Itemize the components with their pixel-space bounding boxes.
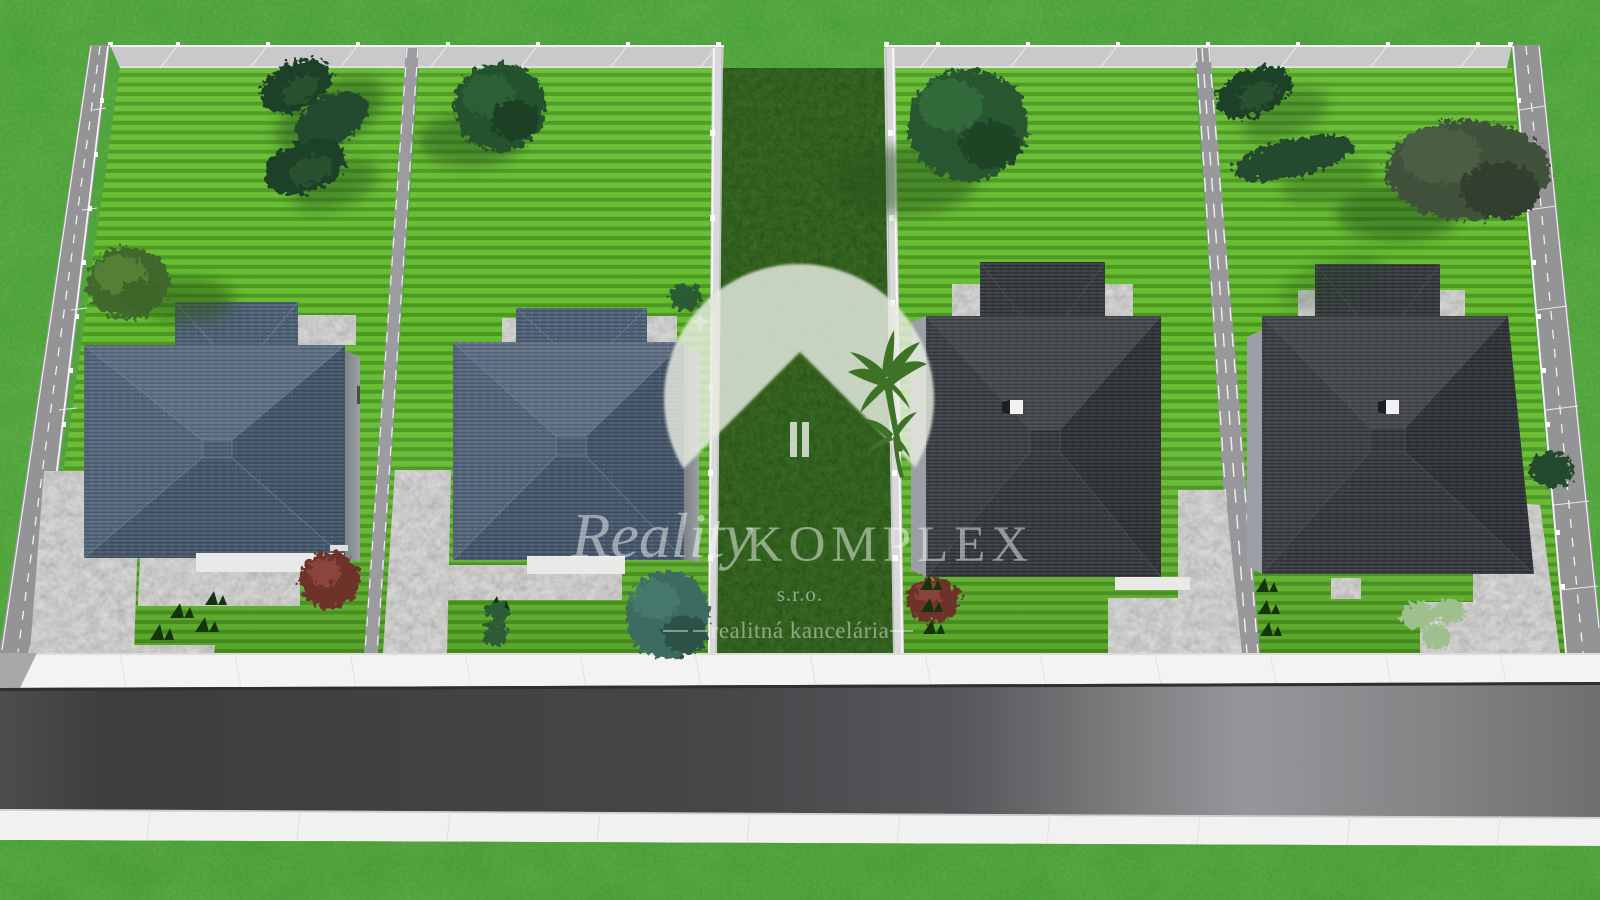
svg-text:Reality: Reality [570,500,753,571]
svg-text:KOMPLEX: KOMPLEX [746,517,1035,573]
svg-text:realitná kancelária: realitná kancelária [711,618,890,643]
svg-text:s.r.o.: s.r.o. [777,582,823,606]
